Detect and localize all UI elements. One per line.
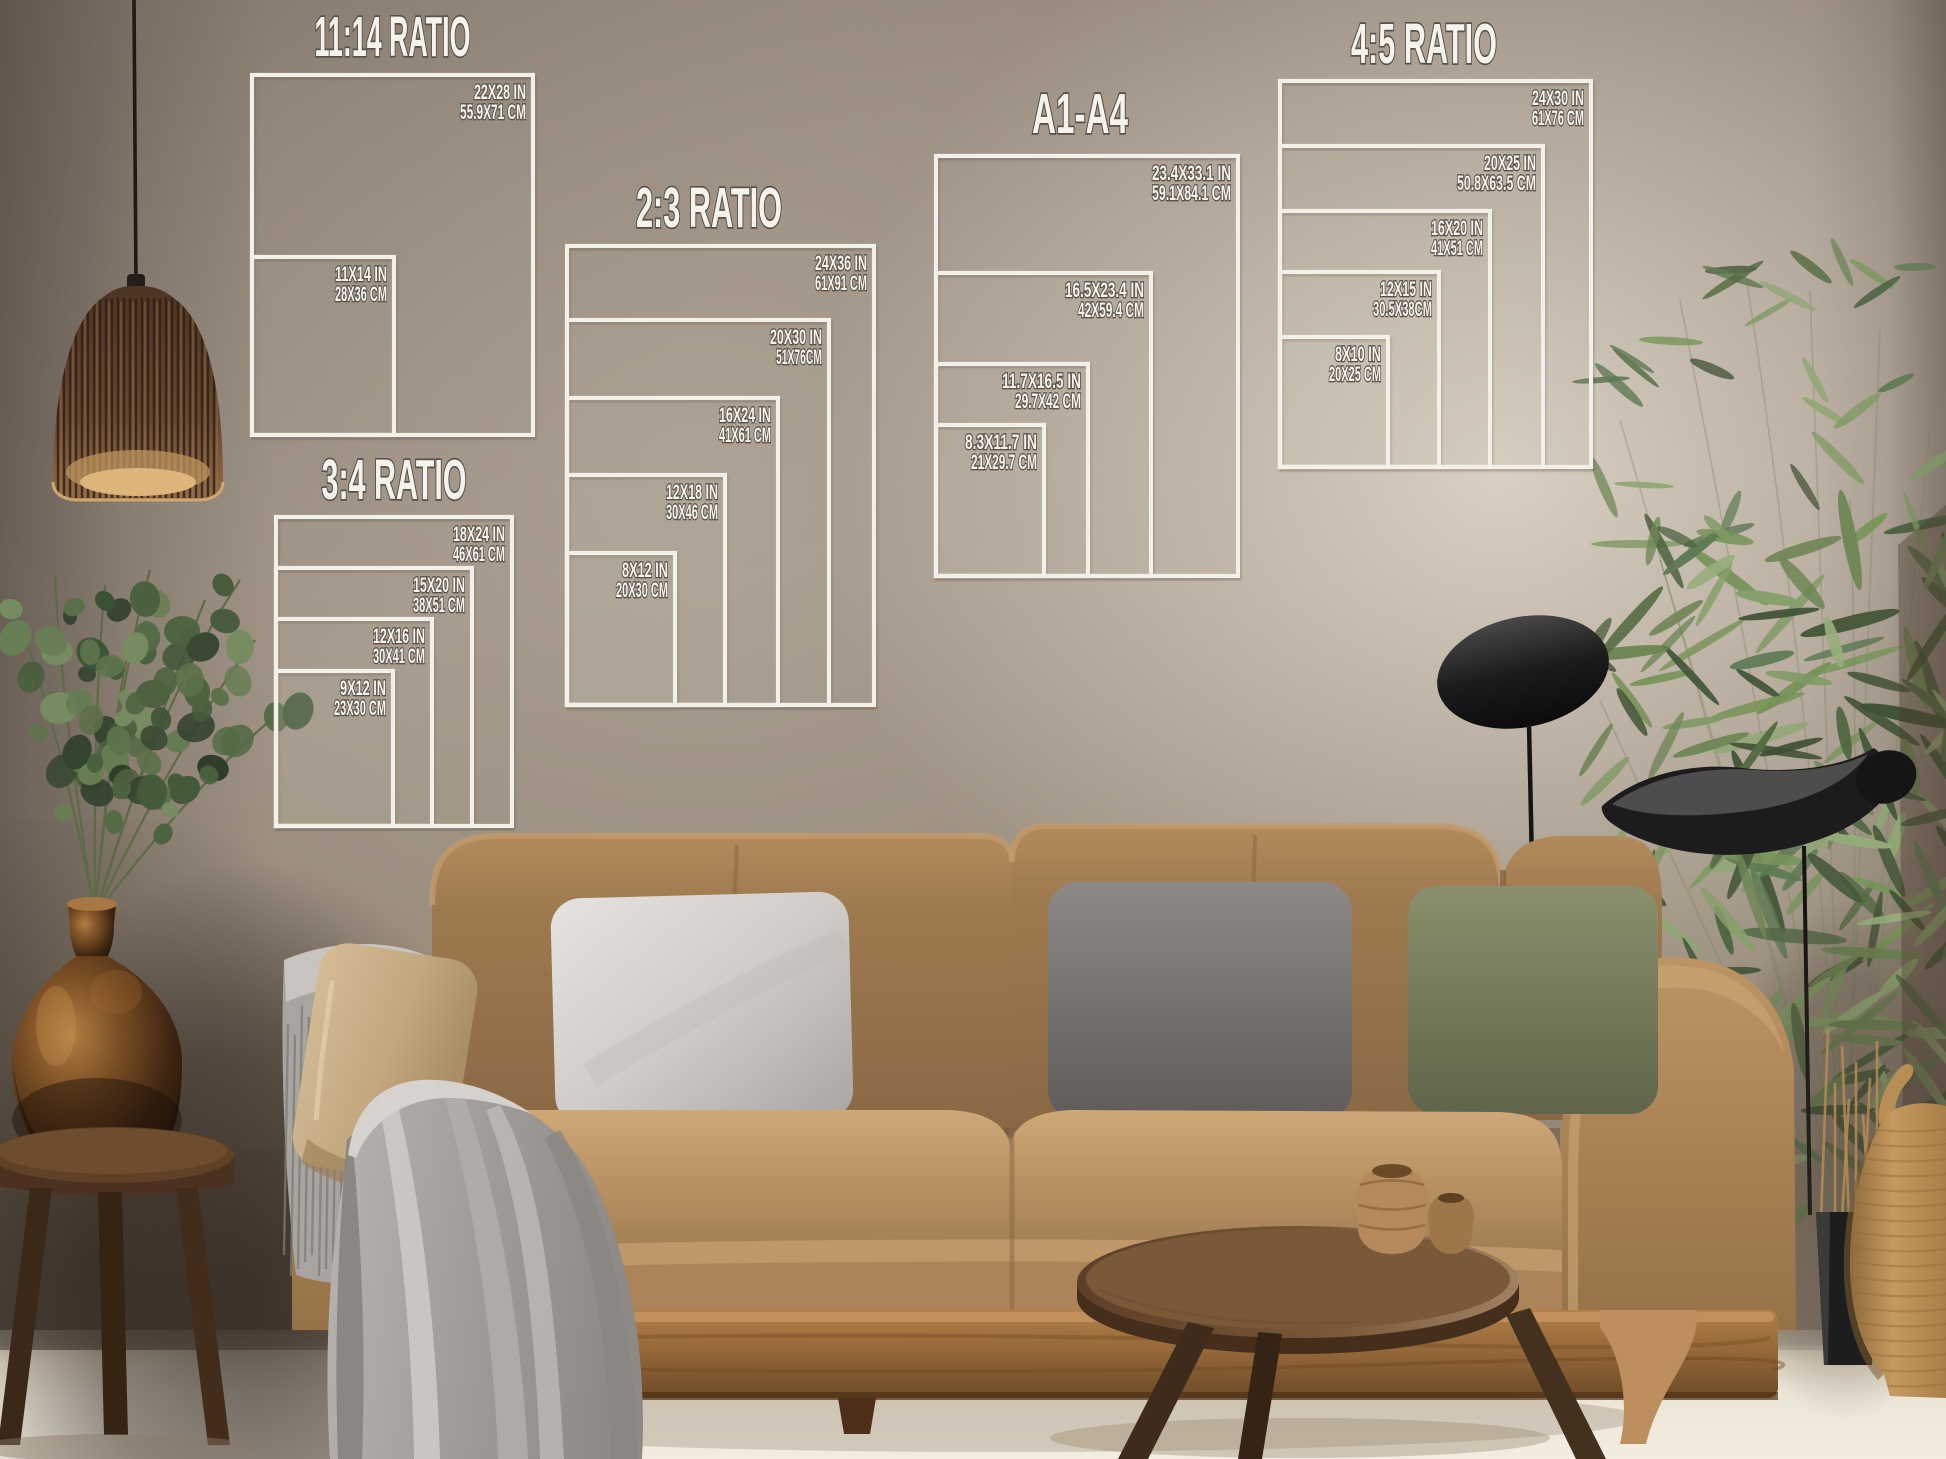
svg-text:2:3 RATIO: 2:3 RATIO (636, 176, 782, 240)
svg-text:A1-A4: A1-A4 (1032, 82, 1128, 146)
svg-text:29.7X42 CM: 29.7X42 CM (1015, 389, 1081, 413)
svg-text:28X36 CM: 28X36 CM (335, 282, 387, 306)
svg-text:41X51 CM: 41X51 CM (1431, 236, 1483, 260)
svg-text:3:4 RATIO: 3:4 RATIO (322, 448, 467, 512)
svg-text:42X59.4 CM: 42X59.4 CM (1078, 298, 1144, 322)
svg-text:30X41 CM: 30X41 CM (373, 644, 425, 668)
svg-text:38X51 CM: 38X51 CM (413, 593, 465, 617)
svg-text:20X25 CM: 20X25 CM (1329, 362, 1381, 386)
svg-text:61X76 CM: 61X76 CM (1532, 106, 1584, 130)
svg-text:30.5X38CM: 30.5X38CM (1373, 297, 1432, 321)
svg-text:41X61 CM: 41X61 CM (719, 423, 771, 447)
svg-text:61X91 CM: 61X91 CM (815, 271, 867, 295)
svg-text:11:14 RATIO: 11:14 RATIO (315, 5, 471, 69)
svg-text:21X29.7 CM: 21X29.7 CM (971, 450, 1037, 474)
svg-text:55.9X71 CM: 55.9X71 CM (460, 100, 526, 124)
svg-text:23X30 CM: 23X30 CM (334, 696, 386, 720)
svg-text:46X61 CM: 46X61 CM (453, 542, 505, 566)
svg-text:59.1X84.1 CM: 59.1X84.1 CM (1152, 181, 1231, 205)
svg-text:30X46 CM: 30X46 CM (666, 500, 718, 524)
svg-text:20X30 CM: 20X30 CM (616, 578, 668, 602)
svg-text:4:5 RATIO: 4:5 RATIO (1351, 12, 1497, 76)
svg-text:51X76CM: 51X76CM (776, 345, 822, 369)
svg-text:50.8X63.5 CM: 50.8X63.5 CM (1457, 171, 1536, 195)
